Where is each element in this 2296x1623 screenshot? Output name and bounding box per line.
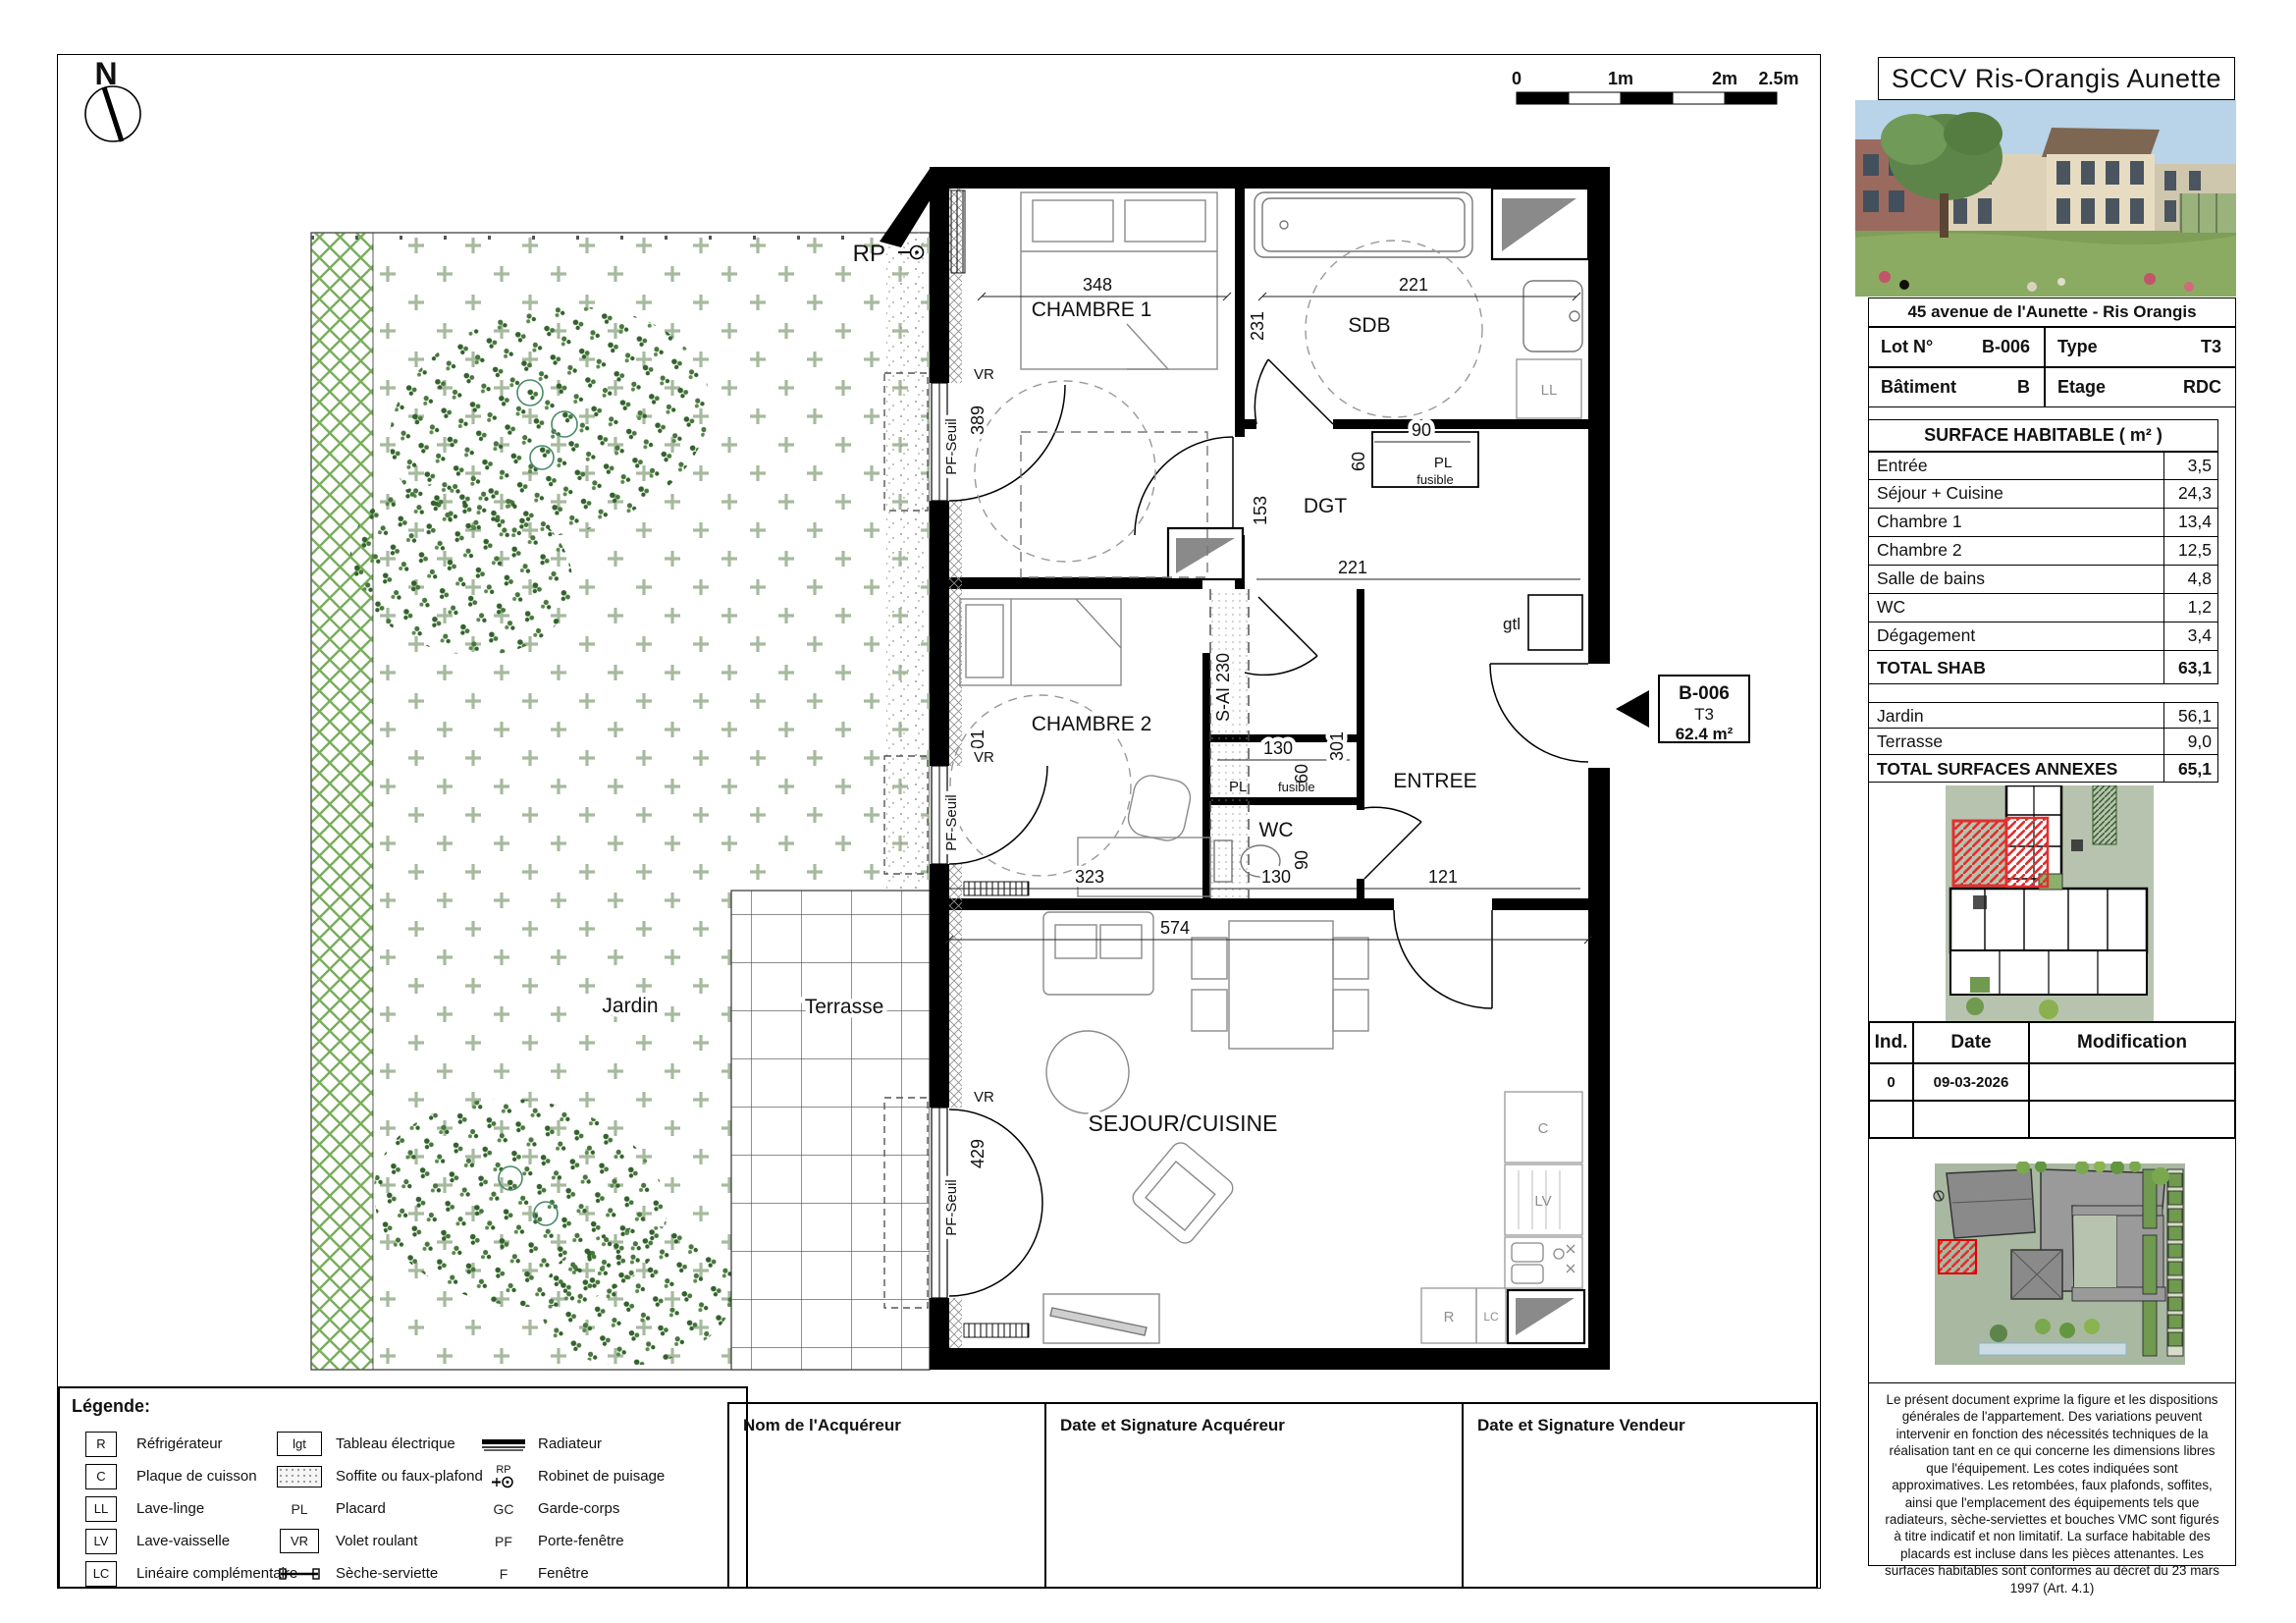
terrasse-label: Terrasse bbox=[805, 996, 884, 1018]
unit-lot: B-006 bbox=[1679, 683, 1730, 704]
fenetre-symbol: F bbox=[500, 1566, 508, 1582]
lc-label: LC bbox=[1483, 1310, 1499, 1324]
legend-item: CPlaque de cuisson bbox=[74, 1460, 297, 1492]
vendor-signature-cell: Date et Signature Vendeur bbox=[1464, 1404, 1816, 1587]
table-row: Terrasse9,0 bbox=[1868, 729, 2218, 755]
cooktop-symbol: C bbox=[85, 1464, 117, 1489]
scale-2m: 2m bbox=[1712, 69, 1737, 88]
batiment-value: B bbox=[2017, 377, 2030, 398]
ll-label: LL bbox=[1541, 382, 1558, 399]
chambre1-label: CHAMBRE 1 bbox=[1032, 298, 1152, 321]
garden: Jardin Terrasse RP bbox=[311, 233, 930, 1380]
buyer-name-cell: Nom de l'Acquéreur bbox=[729, 1404, 1046, 1587]
lv-label: LV bbox=[1534, 1193, 1551, 1210]
legend-item: lgtTableau électrique bbox=[271, 1428, 483, 1460]
entree-label: ENTREE bbox=[1393, 770, 1476, 792]
sejour-label: SEJOUR/CUISINE bbox=[1089, 1110, 1278, 1136]
site-plan-image bbox=[1925, 1162, 2195, 1370]
legend-column-1: RRéfrigérateur CPlaque de cuisson LLLave… bbox=[74, 1428, 297, 1590]
highlighted-unit bbox=[1953, 818, 2048, 887]
legend-item: PFPorte-fenêtre bbox=[477, 1525, 665, 1557]
unit-tag: B-006 T3 62.4 m² bbox=[1616, 676, 1749, 743]
soffit-strip: S-AI 230 bbox=[1210, 589, 1249, 898]
legend-item: VRVolet roulant bbox=[271, 1525, 483, 1557]
scale-1m: 1m bbox=[1608, 69, 1633, 88]
fridge-label: R bbox=[1444, 1309, 1455, 1325]
table-row: Salle de bains4,8 bbox=[1868, 566, 2218, 594]
apartment-plan: S-AI 230 90 60 PL fusible PL fusible 130… bbox=[880, 167, 1749, 1370]
legend-column-2: lgtTableau électrique Soffite ou faux-pl… bbox=[271, 1428, 483, 1590]
legend-item: RP Robinet de puisage bbox=[477, 1460, 665, 1492]
jardin-label: Jardin bbox=[602, 995, 658, 1017]
lot-info-table: Lot N°B-006 TypeT3 BâtimentB EtageRDC bbox=[1868, 327, 2236, 407]
north-arrow-icon: N bbox=[85, 56, 140, 141]
dim-dgt-height: 153 bbox=[1251, 496, 1270, 525]
dim-dgt-placard-depth: 60 bbox=[1349, 452, 1368, 471]
pf-seuil-label-1: PF-Seuil bbox=[943, 418, 960, 475]
vr-label-3: VR bbox=[974, 1089, 994, 1106]
linear-symbol: LC bbox=[85, 1561, 117, 1587]
vr-label-1: VR bbox=[974, 366, 994, 383]
table-row: Dégagement3,4 bbox=[1868, 622, 2218, 651]
legend-title: Légende: bbox=[72, 1396, 150, 1417]
legend-item: RRéfrigérateur bbox=[74, 1428, 297, 1460]
buyer-signature-cell: Date et Signature Acquéreur bbox=[1046, 1404, 1464, 1587]
legend-item: PLPlacard bbox=[271, 1492, 483, 1525]
electrical-panel-symbol: lgt bbox=[277, 1432, 322, 1456]
dim-pl-width: 130 bbox=[1263, 738, 1293, 758]
porte-fenetre-symbol: PF bbox=[495, 1534, 512, 1549]
dim-sejour-window: 429 bbox=[968, 1139, 988, 1168]
dgt-label: DGT bbox=[1304, 495, 1348, 517]
revision-table: Ind. Date Modification 0 09-03-2026 bbox=[1868, 1021, 2236, 1139]
gtl-label: gtl bbox=[1503, 615, 1521, 633]
legend-box: Légende: RRéfrigérateur CPlaque de cuiss… bbox=[58, 1386, 748, 1589]
dim-sejour-width: 574 bbox=[1160, 918, 1190, 938]
address: 45 avenue de l'Aunette - Ris Orangis bbox=[1868, 298, 2236, 327]
dim-chambre1-width: 348 bbox=[1083, 275, 1112, 295]
legend-item: Sèche-serviette bbox=[271, 1557, 483, 1590]
dim-wc-depth: 90 bbox=[1292, 850, 1311, 870]
dim-chambre1-window: 389 bbox=[968, 406, 988, 435]
unit-type: T3 bbox=[1694, 705, 1714, 724]
garde-corps-symbol: GC bbox=[494, 1501, 514, 1517]
vr-label-2: VR bbox=[974, 749, 994, 766]
cooktop-label: C bbox=[1538, 1120, 1549, 1137]
signature-table: Nom de l'Acquéreur Date et Signature Acq… bbox=[727, 1402, 1818, 1589]
dim-sdb-height: 231 bbox=[1248, 311, 1267, 341]
dim-entree-width: 121 bbox=[1428, 867, 1458, 887]
dgt-fusible-label: fusible bbox=[1416, 472, 1454, 487]
floor-plan-drawing: N 0 1m 2m 2.5m Jardin bbox=[57, 54, 1821, 1589]
revision-header-row: Ind. Date Modification bbox=[1869, 1022, 2235, 1063]
site-highlighted-unit bbox=[1939, 1240, 1976, 1273]
legend-item: GCGarde-corps bbox=[477, 1492, 665, 1525]
sdb-label: SDB bbox=[1348, 314, 1390, 337]
soffite-label: S-AI 230 bbox=[1213, 653, 1233, 722]
rp-label: RP bbox=[853, 241, 885, 267]
washer-symbol: LL bbox=[85, 1496, 117, 1522]
chambre2-label: CHAMBRE 2 bbox=[1032, 713, 1152, 735]
surface-table: Entrée3,5 Séjour + Cuisine24,3 Chambre 1… bbox=[1868, 452, 2218, 684]
building-render-photo bbox=[1855, 100, 2236, 297]
scale-2.5m: 2.5m bbox=[1758, 69, 1798, 88]
pl-label: PL bbox=[1229, 779, 1247, 795]
etage-label: Etage bbox=[2057, 377, 2106, 398]
dim-pl-depth: 60 bbox=[1292, 764, 1311, 784]
pf-seuil-label-3: PF-Seuil bbox=[943, 1179, 960, 1236]
key-plan-image bbox=[1946, 785, 2154, 1023]
total-shab-row: TOTAL SHAB63,1 bbox=[1868, 651, 2218, 684]
legend-item: FFenêtre bbox=[477, 1557, 665, 1590]
legend-item: LCLinéaire complémentaire bbox=[74, 1557, 297, 1590]
wc-label: WC bbox=[1259, 819, 1294, 841]
terrace bbox=[731, 891, 930, 1370]
placard-symbol: PL bbox=[291, 1501, 307, 1517]
surface-table-header: SURFACE HABITABLE ( m² ) bbox=[1868, 419, 2218, 452]
dim-entree-height: 301 bbox=[1327, 731, 1347, 761]
pf-seuil-label-2: PF-Seuil bbox=[943, 794, 960, 851]
legend-item: Radiateur bbox=[477, 1428, 665, 1460]
table-row: Chambre 113,4 bbox=[1868, 509, 2218, 537]
scale-bar: 0 1m 2m 2.5m bbox=[1512, 69, 1799, 104]
dishwasher-symbol: LV bbox=[85, 1529, 117, 1554]
total-annex-row: TOTAL SURFACES ANNEXES65,1 bbox=[1868, 755, 2218, 783]
etage-value: RDC bbox=[2183, 377, 2221, 398]
batiment-label: Bâtiment bbox=[1881, 377, 1956, 398]
annex-surface-table: Jardin56,1 Terrasse9,0 TOTAL SURFACES AN… bbox=[1868, 702, 2218, 783]
disclaimer-note: Le présent document exprime la figure et… bbox=[1868, 1382, 2236, 1566]
legend-column-3: Radiateur RP Robinet de puisage GCGarde-… bbox=[477, 1428, 665, 1590]
revision-row-empty bbox=[1869, 1101, 2235, 1138]
dim-chambre2-width: 323 bbox=[1075, 867, 1104, 887]
towel-dryer-icon bbox=[277, 1566, 322, 1582]
legend-item: LVLave-vaisselle bbox=[74, 1525, 297, 1557]
soffit-swatch bbox=[277, 1466, 322, 1488]
legend-item: Soffite ou faux-plafond bbox=[271, 1460, 483, 1492]
dgt-pl-label: PL bbox=[1434, 455, 1452, 471]
type-label: Type bbox=[2057, 337, 2098, 357]
radiator-icon bbox=[481, 1437, 526, 1451]
scale-0: 0 bbox=[1512, 69, 1522, 88]
table-row: WC1,2 bbox=[1868, 594, 2218, 622]
dim-dgt-placard-width: 90 bbox=[1412, 420, 1431, 440]
dim-sdb-width: 221 bbox=[1399, 275, 1428, 295]
lot-label: Lot N° bbox=[1881, 337, 1933, 357]
revision-row: 0 09-03-2026 bbox=[1869, 1063, 2235, 1101]
dim-wc-width: 130 bbox=[1261, 867, 1291, 887]
table-row: Séjour + Cuisine24,3 bbox=[1868, 480, 2218, 509]
unit-area: 62.4 m² bbox=[1676, 725, 1734, 743]
dim-dgt-width: 221 bbox=[1338, 558, 1367, 577]
fridge-symbol: R bbox=[85, 1432, 117, 1457]
type-value: T3 bbox=[2201, 337, 2221, 357]
table-row: Jardin56,1 bbox=[1868, 702, 2218, 729]
table-row: Entrée3,5 bbox=[1868, 452, 2218, 480]
lot-value: B-006 bbox=[1982, 337, 2030, 357]
project-title: SCCV Ris-Orangis Aunette bbox=[1878, 57, 2235, 100]
water-tap-icon: RP bbox=[491, 1465, 516, 1488]
legend-item: LLLave-linge bbox=[74, 1492, 297, 1525]
volet-roulant-symbol: VR bbox=[280, 1529, 319, 1553]
table-row: Chambre 212,5 bbox=[1868, 537, 2218, 566]
